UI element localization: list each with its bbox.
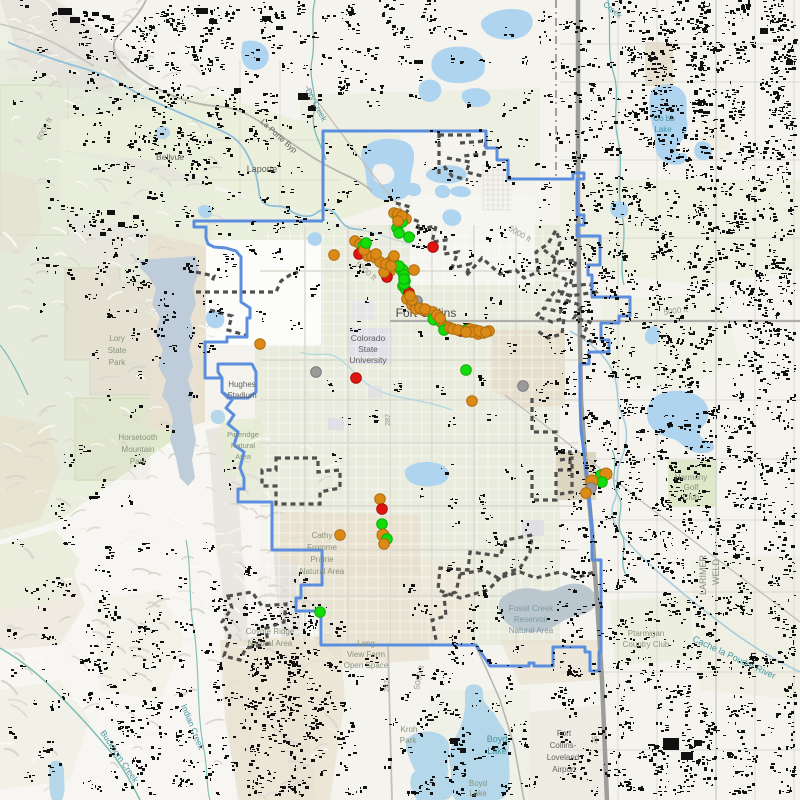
svg-text:Natural Area: Natural Area: [300, 567, 345, 576]
svg-text:Fossil Creek: Fossil Creek: [509, 604, 554, 613]
svg-text:Bellvue: Bellvue: [156, 152, 184, 162]
svg-text:Ptarmigan: Ptarmigan: [628, 629, 664, 638]
svg-text:University: University: [349, 355, 387, 365]
svg-text:Lory: Lory: [109, 334, 125, 343]
svg-text:25: 25: [592, 736, 600, 744]
svg-text:Airport: Airport: [552, 765, 576, 774]
svg-text:Pineridge: Pineridge: [227, 430, 259, 439]
svg-text:Prairie: Prairie: [310, 555, 334, 564]
svg-text:Cathy: Cathy: [312, 531, 333, 540]
svg-text:Horsetooth: Horsetooth: [118, 433, 157, 442]
svg-text:Laporte: Laporte: [247, 164, 278, 174]
svg-text:Park: Park: [109, 358, 126, 367]
svg-text:Kroh: Kroh: [401, 725, 418, 734]
svg-text:Hughes: Hughes: [228, 380, 256, 389]
svg-text:Fort: Fort: [557, 729, 572, 738]
svg-text:Club: Club: [683, 493, 700, 502]
svg-text:Loveland: Loveland: [547, 753, 579, 762]
svg-text:287: 287: [384, 680, 391, 692]
svg-text:Mountain: Mountain: [122, 445, 155, 454]
svg-text:Harmony: Harmony: [675, 473, 707, 482]
svg-text:Country Club: Country Club: [623, 640, 670, 649]
svg-text:Lake: Lake: [487, 746, 507, 756]
svg-text:Co bb: Co bb: [653, 114, 675, 123]
svg-text:Fromme: Fromme: [307, 543, 337, 552]
svg-text:Park: Park: [130, 457, 147, 466]
svg-text:Collins-: Collins-: [550, 741, 577, 750]
svg-text:Reservoir: Reservoir: [514, 615, 549, 624]
svg-text:State: State: [108, 346, 127, 355]
svg-text:Stadium: Stadium: [227, 391, 257, 400]
svg-text:Natural Area: Natural Area: [248, 639, 293, 648]
svg-text:Area: Area: [235, 452, 252, 461]
svg-text:View Farm: View Farm: [347, 650, 385, 659]
svg-text:LARIMER: LARIMER: [698, 554, 708, 595]
svg-text:State: State: [358, 344, 378, 354]
svg-text:Natural: Natural: [231, 441, 256, 450]
svg-text:Colorado: Colorado: [351, 333, 386, 343]
svg-text:Coyote Ridge: Coyote Ridge: [246, 627, 295, 636]
svg-text:Park: Park: [400, 736, 417, 745]
svg-text:Lake: Lake: [654, 125, 672, 134]
svg-text:Boyd: Boyd: [487, 734, 508, 744]
svg-text:Boyd: Boyd: [469, 779, 487, 788]
svg-text:Open Space: Open Space: [344, 661, 389, 670]
svg-text:Golf: Golf: [684, 483, 699, 492]
svg-text:WELD: WELD: [711, 559, 721, 586]
svg-text:Long: Long: [357, 639, 375, 648]
svg-text:Natural Area: Natural Area: [509, 626, 554, 635]
svg-text:Lake: Lake: [469, 789, 487, 798]
svg-text:287: 287: [385, 414, 392, 426]
